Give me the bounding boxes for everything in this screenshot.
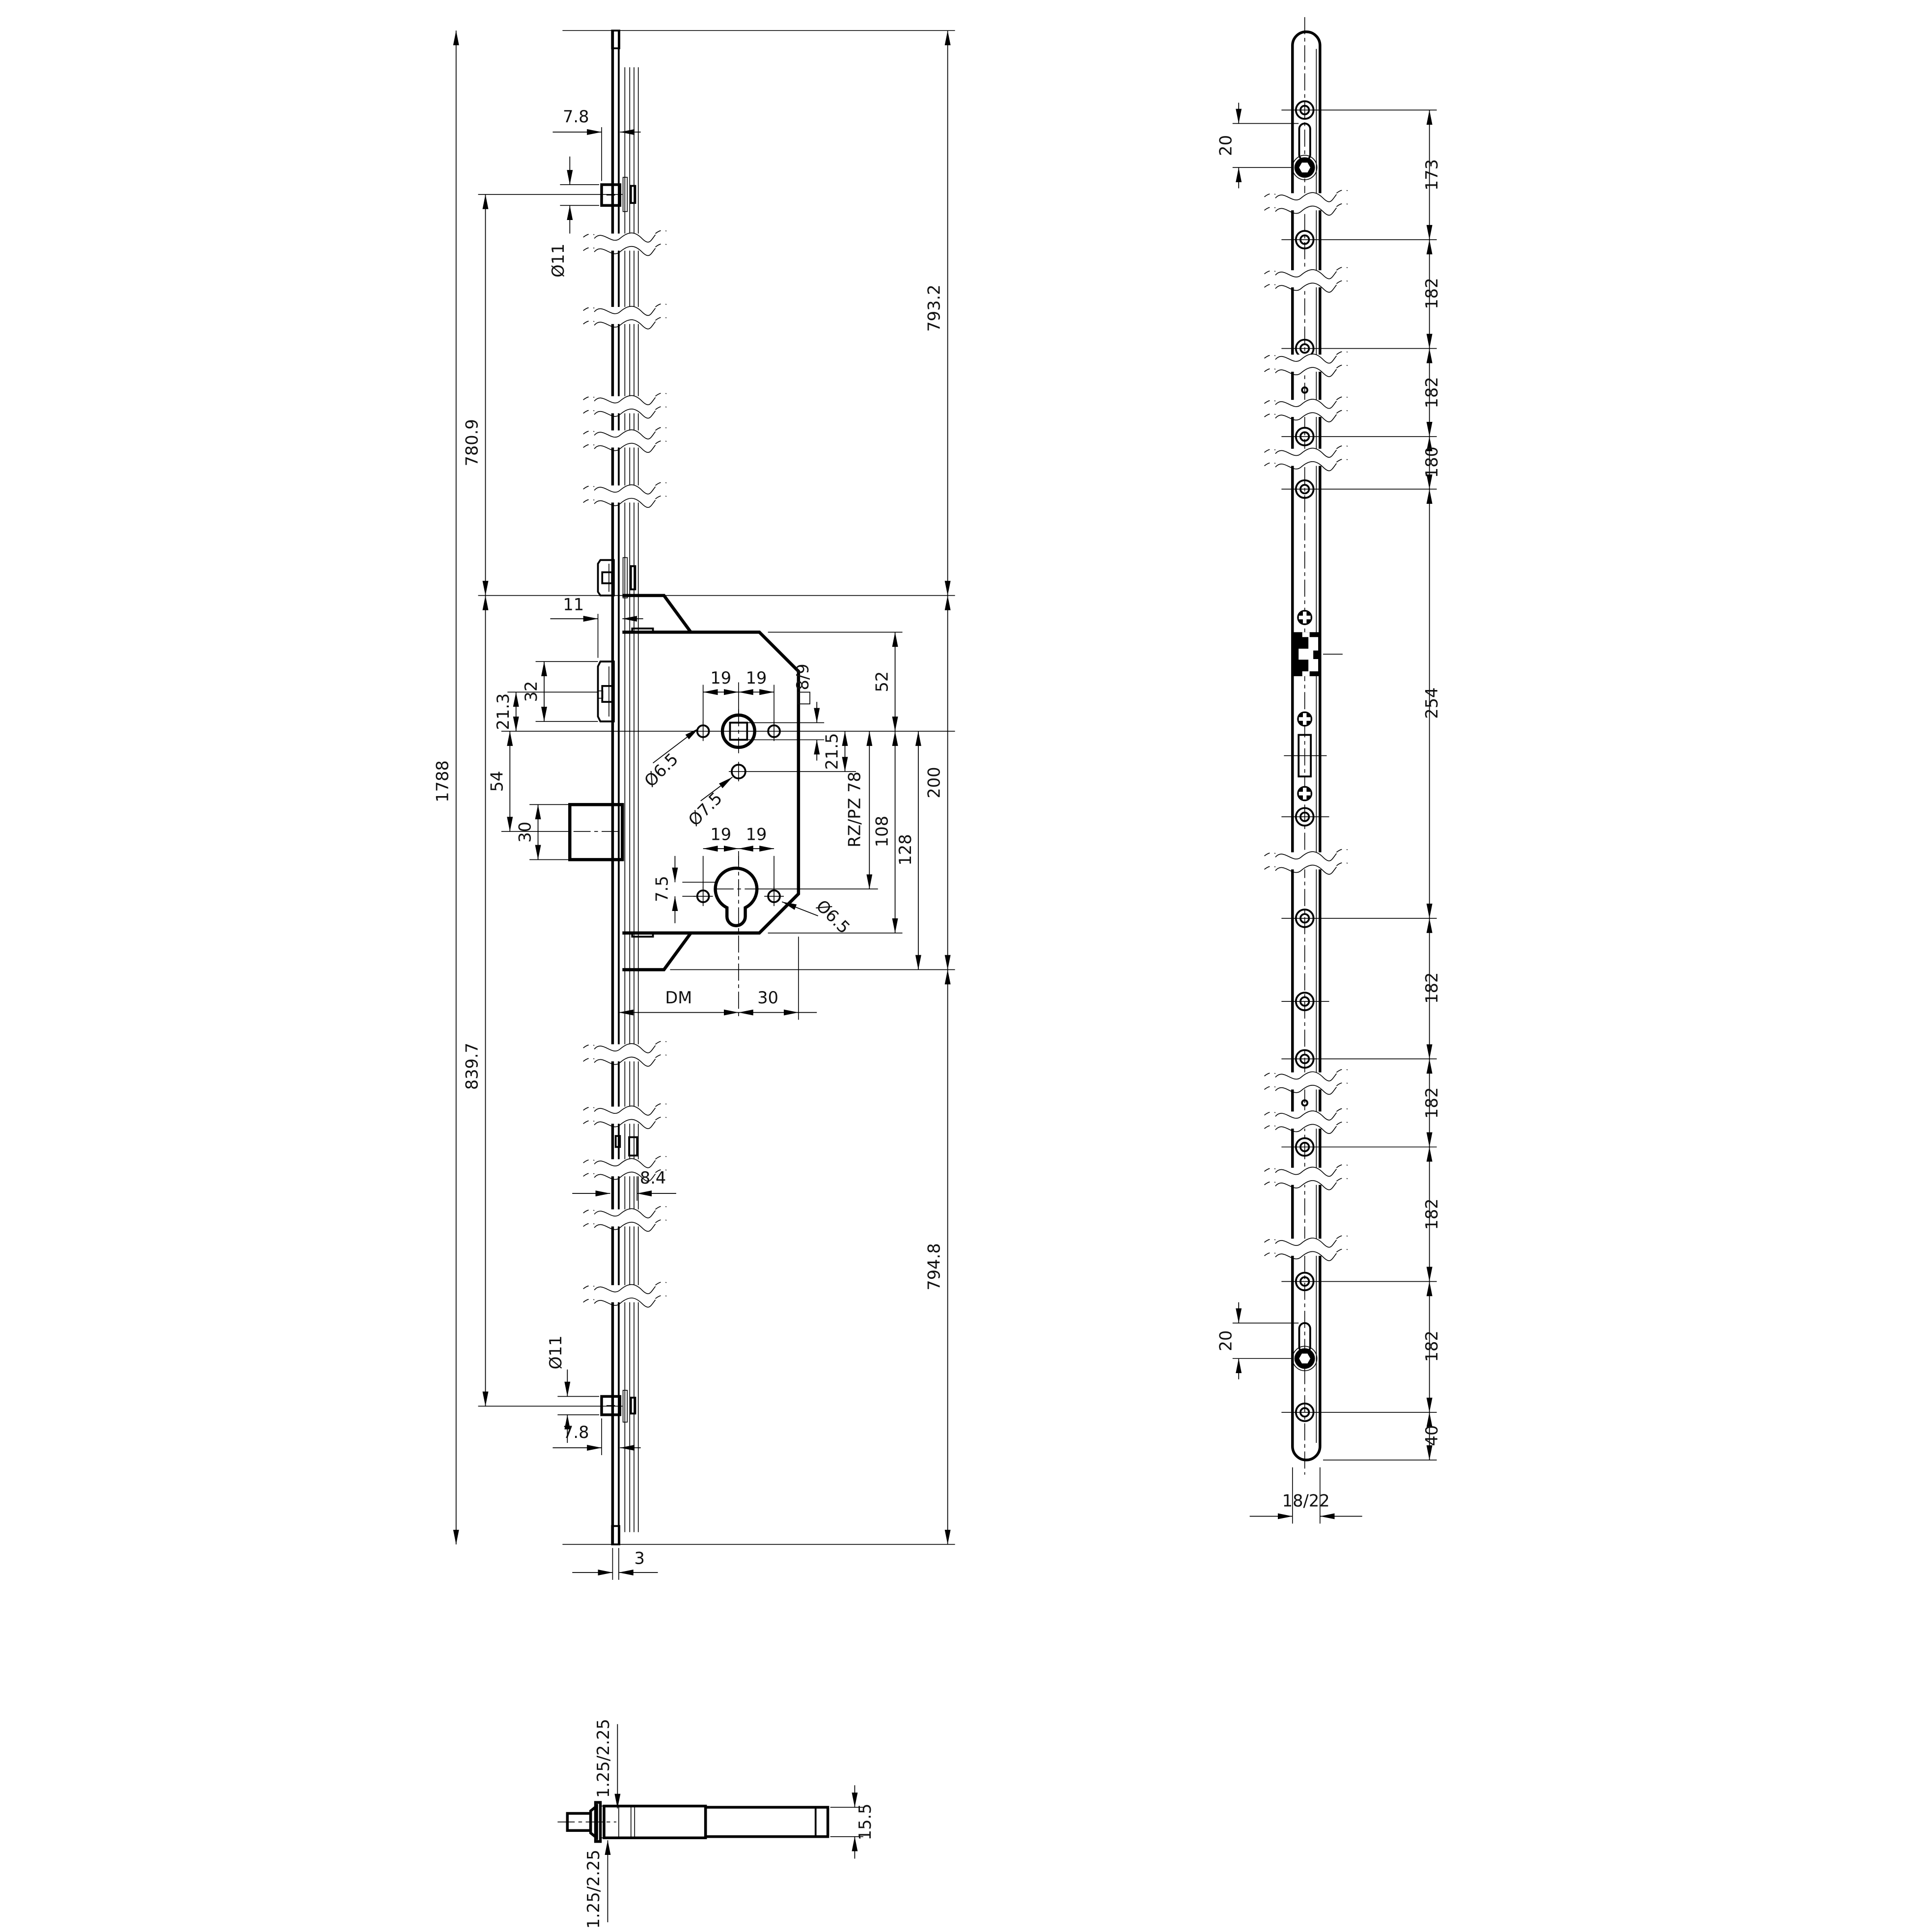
dim-chain-0: 173 — [1422, 159, 1441, 191]
dim-spacing-1: 19 — [710, 668, 731, 688]
dim-right-upper: 793.2 — [924, 284, 943, 331]
hex-screw-bottom — [1293, 1346, 1317, 1371]
dim-right-lower: 794.8 — [924, 1243, 943, 1290]
dim-chain-2: 182 — [1422, 377, 1441, 408]
technical-drawing-canvas: 1788 780.9 839.7 793.2 200 794.8 7.8 Ø11… — [0, 0, 1932, 1932]
dim-52: 52 — [873, 671, 892, 692]
latch-tail — [706, 1807, 828, 1837]
latch-body — [604, 1806, 706, 1838]
side-view: 1788 780.9 839.7 793.2 200 794.8 7.8 Ø11… — [433, 30, 955, 1580]
dim-thickness-top: 1.25/2.25 — [594, 1719, 613, 1798]
dim-latch-height: 32 — [522, 681, 541, 702]
phillips-screw-2 — [1297, 712, 1312, 727]
dim-upper-span: 780.9 — [462, 419, 481, 466]
dim-chain-9: 40 — [1422, 1425, 1441, 1446]
hex-screw-top — [1293, 155, 1317, 180]
dim-spacing-3: 19 — [710, 825, 731, 844]
dim-top-pin-dia: Ø11 — [549, 244, 568, 277]
dim-latch-protrusion: 11 — [563, 595, 584, 614]
dim-chain-4: 254 — [1422, 688, 1441, 719]
deadbolt — [570, 804, 622, 859]
dim-below-case: 128 — [896, 834, 915, 865]
section-view: 1.25/2.25 1.25/2.25 15.5 — [557, 1719, 874, 1929]
dim-thickness-bottom: 1.25/2.25 — [584, 1849, 603, 1929]
latch-opening — [1294, 632, 1321, 676]
dim-cyl-distance: RZ/PZ 78 — [845, 772, 864, 847]
phillips-screw-3 — [1297, 786, 1312, 801]
front-view: 173 182 182 180 254 182 182 182 182 40 2… — [1216, 17, 1441, 1524]
dim-chain-3: 180 — [1422, 446, 1441, 478]
dim-chain-8: 182 — [1422, 1330, 1441, 1362]
front-dimensions: 173 182 182 180 254 182 182 182 182 40 2… — [1216, 103, 1441, 1523]
faceplate-edge — [612, 30, 638, 1544]
section-dimensions: 1.25/2.25 1.25/2.25 15.5 — [584, 1719, 875, 1929]
dim-slot-bottom: 20 — [1216, 1330, 1235, 1352]
dim-cutout: 200 — [924, 767, 943, 798]
side-dimensions: 1788 780.9 839.7 793.2 200 794.8 7.8 Ø11… — [433, 30, 948, 1573]
dim-backset-30: 30 — [757, 988, 778, 1007]
dim-chain-1: 182 — [1422, 277, 1441, 309]
cylinder-hole — [716, 868, 757, 926]
dim-bolt-height: 30 — [516, 822, 535, 843]
dim-hole-offset: 7.5 — [652, 876, 671, 902]
dim-square: □8/9 — [793, 663, 812, 706]
dim-hole-top: Ø6.5 — [640, 749, 682, 791]
dim-section-height: 15.5 — [856, 1803, 875, 1840]
dim-lower-span: 839.7 — [462, 1043, 481, 1090]
dim-latch-offset: 21.3 — [494, 693, 513, 730]
dim-hole-bottom: Ø6.5 — [812, 896, 854, 938]
dim-chain-5: 182 — [1422, 972, 1441, 1004]
dim-top-pin-offset: 7.8 — [563, 107, 589, 126]
dim-spacing-4: 19 — [746, 825, 767, 844]
dim-chain-6: 182 — [1422, 1087, 1441, 1119]
dim-slot-top: 20 — [1216, 135, 1235, 156]
dim-hole-mid: Ø7.5 — [685, 789, 726, 830]
dim-bottom-pin-offset: 7.8 — [563, 1423, 589, 1442]
dim-backset: DM — [665, 988, 692, 1007]
dim-plate-thickness: 3 — [635, 1549, 645, 1568]
dim-spacing-2: 19 — [746, 668, 767, 688]
dim-chain-7: 182 — [1422, 1198, 1441, 1230]
dim-follower-to-bolt: 54 — [487, 771, 506, 792]
dim-channel-depth: 8.4 — [640, 1168, 666, 1187]
dim-offset-215: 21.5 — [823, 733, 842, 770]
dim-overall: 1788 — [433, 760, 452, 802]
lock-case — [570, 596, 799, 970]
dim-bottom-pin-dia: Ø11 — [546, 1335, 565, 1369]
dim-case-lower: 108 — [873, 816, 892, 847]
phillips-screw-1 — [1297, 610, 1312, 625]
dim-width: 18/22 — [1282, 1491, 1330, 1511]
